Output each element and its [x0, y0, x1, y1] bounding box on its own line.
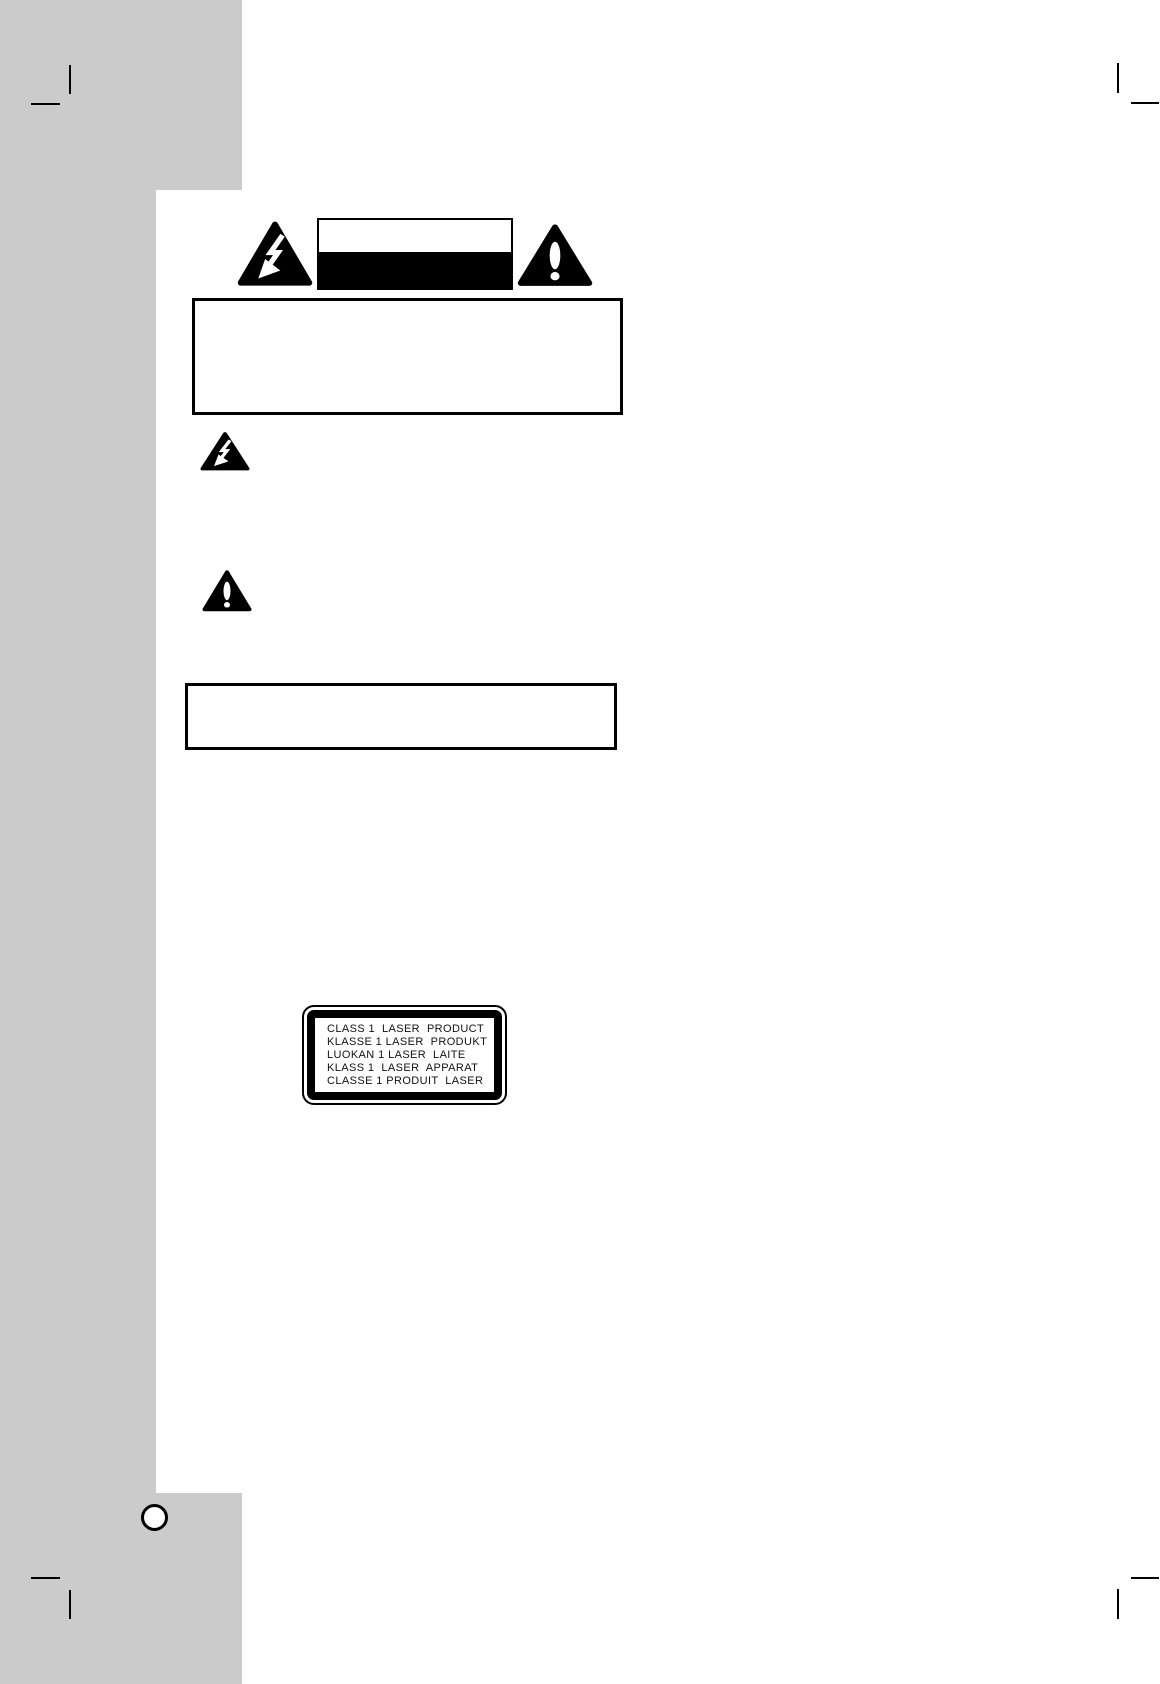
laser-class-label: CLASS 1 LASER PRODUCT KLASSE 1 LASER PRO… [302, 1005, 507, 1105]
caution-note-text-box [185, 683, 617, 750]
page-number-circle [141, 1504, 168, 1531]
laser-label-line: LUOKAN 1 LASER LAITE [327, 1049, 494, 1062]
laser-class-label-text: CLASS 1 LASER PRODUCT KLASSE 1 LASER PRO… [315, 1023, 494, 1088]
laser-class-label-frame: CLASS 1 LASER PRODUCT KLASSE 1 LASER PRO… [307, 1010, 502, 1100]
crop-mark-top-left-vertical [69, 65, 71, 94]
lightning-icon [200, 430, 250, 473]
top-left-margin-block [0, 0, 242, 190]
crop-mark-bottom-right-horizontal [1131, 1577, 1159, 1579]
crop-mark-bottom-right-vertical [1117, 1589, 1119, 1619]
exclamation-icon [202, 568, 252, 614]
crop-mark-top-right-vertical [1117, 63, 1119, 93]
shock-warning-text-box [192, 298, 623, 415]
crop-mark-bottom-left-horizontal [31, 1577, 60, 1579]
manual-safety-page: CLASS 1 LASER PRODUCT KLASSE 1 LASER PRO… [0, 0, 1160, 1684]
crop-mark-bottom-left-vertical [69, 1590, 71, 1619]
caution-label-box [317, 218, 513, 290]
laser-label-line: CLASS 1 LASER PRODUCT [327, 1023, 494, 1036]
alert-exclamation-icon [517, 221, 593, 290]
electric-shock-lightning-icon [237, 218, 313, 290]
left-margin-strip [0, 0, 156, 1493]
laser-label-line: CLASSE 1 PRODUIT LASER [327, 1075, 494, 1088]
laser-label-line: KLASS 1 LASER APPARAT [327, 1062, 494, 1075]
crop-mark-top-left-horizontal [31, 103, 60, 105]
laser-label-line: KLASSE 1 LASER PRODUKT [327, 1036, 494, 1049]
bottom-left-margin-block [0, 1493, 242, 1684]
crop-mark-top-right-horizontal [1131, 102, 1159, 104]
